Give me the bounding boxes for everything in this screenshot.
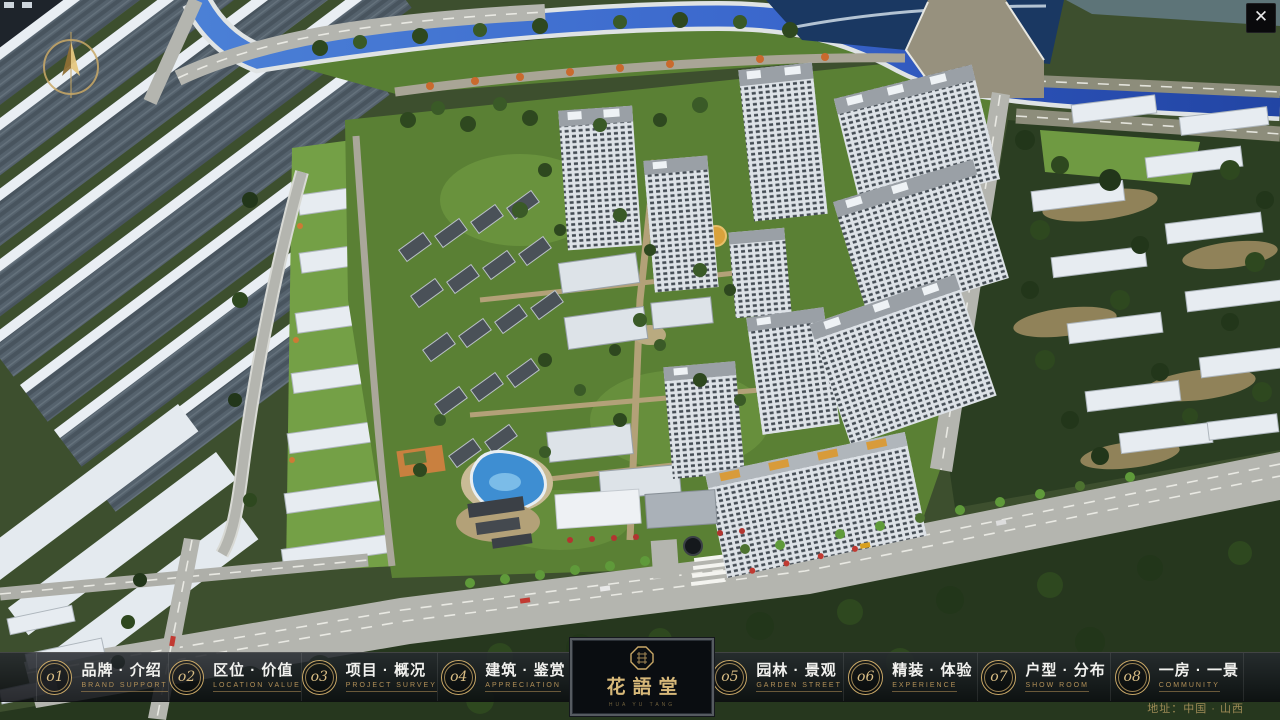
nav-item-project-overview[interactable]: o3 项目 · 概况 PROJECT SURVEY — [302, 653, 438, 701]
nav-label-en: LOCATION VALUE — [213, 682, 301, 692]
nav-label-zh: 园林 · 景观 — [756, 663, 836, 678]
navbar-left-group: o1 品牌 · 介绍 BRAND SUPPORT o2 区位 · 价值 LOCA… — [36, 653, 570, 701]
nav-number-badge: o3 — [302, 660, 337, 695]
nav-item-brand-intro[interactable]: o1 品牌 · 介绍 BRAND SUPPORT — [36, 653, 169, 701]
tower-649 — [643, 155, 718, 292]
nav-item-location-value[interactable]: o2 区位 · 价值 LOCATION VALUE — [169, 653, 302, 701]
close-button[interactable]: ✕ — [1246, 3, 1276, 33]
nav-label-zh: 一房 · 一景 — [1159, 663, 1239, 678]
nav-label-en: APPRECIATION — [485, 682, 561, 692]
nav-label-zh: 精装 · 体验 — [892, 663, 972, 678]
nav-label-en: GARDEN STREET — [756, 682, 842, 692]
nav-number-badge: o7 — [981, 660, 1016, 695]
project-logo-plaque: 花語堂 HUA YU TANG — [570, 638, 714, 716]
nav-label-en: EXPERIENCE — [892, 682, 957, 692]
tower-746 — [738, 63, 827, 222]
nav-item-landscape[interactable]: o5 园林 · 景观 GARDEN STREET — [710, 653, 844, 701]
nav-number-badge: o2 — [169, 660, 204, 695]
tower-732 — [728, 228, 791, 319]
seal-icon — [630, 646, 654, 670]
nav-label-en: PROJECT SURVEY — [346, 682, 437, 692]
nav-label-zh: 品牌 · 介绍 — [81, 663, 161, 678]
nav-item-room-views[interactable]: o8 一房 · 一景 COMMUNITY — [1111, 653, 1244, 701]
nav-number-badge: o4 — [441, 660, 476, 695]
sales-presentation-app: ✕ o1 品牌 · 介绍 BRAND SUPPORT o2 区位 · 价值 LO… — [0, 0, 1280, 720]
navbar-right-group: o5 园林 · 景观 GARDEN STREET o6 精装 · 体验 EXPE… — [710, 653, 1244, 701]
nav-label-en: SHOW ROOM — [1025, 682, 1089, 692]
nav-label-zh: 户型 · 分布 — [1025, 663, 1105, 678]
nav-label-en: COMMUNITY — [1159, 682, 1220, 692]
project-address: 地址：中国 · 山西 — [1147, 700, 1244, 716]
nav-item-interior-experience[interactable]: o6 精装 · 体验 EXPERIENCE — [844, 653, 977, 701]
compass-icon — [34, 30, 108, 104]
nav-label-zh: 建筑 · 鉴赏 — [485, 663, 565, 678]
project-name: 花語堂 — [599, 672, 684, 699]
nav-item-floorplans[interactable]: o7 户型 · 分布 SHOW ROOM — [978, 653, 1111, 701]
nav-label-zh: 区位 · 价值 — [213, 663, 293, 678]
nav-label-en: BRAND SUPPORT — [81, 682, 167, 692]
nav-number-badge: o1 — [37, 660, 72, 695]
nav-number-badge: o6 — [848, 660, 883, 695]
project-name-latin: HUA YU TANG — [609, 702, 675, 708]
nav-item-architecture[interactable]: o4 建筑 · 鉴赏 APPRECIATION — [438, 653, 570, 701]
nav-number-badge: o8 — [1115, 660, 1150, 695]
nav-number-badge: o5 — [712, 660, 747, 695]
nav-label-zh: 项目 · 概况 — [346, 663, 426, 678]
aerial-masterplan-render — [0, 0, 1280, 720]
